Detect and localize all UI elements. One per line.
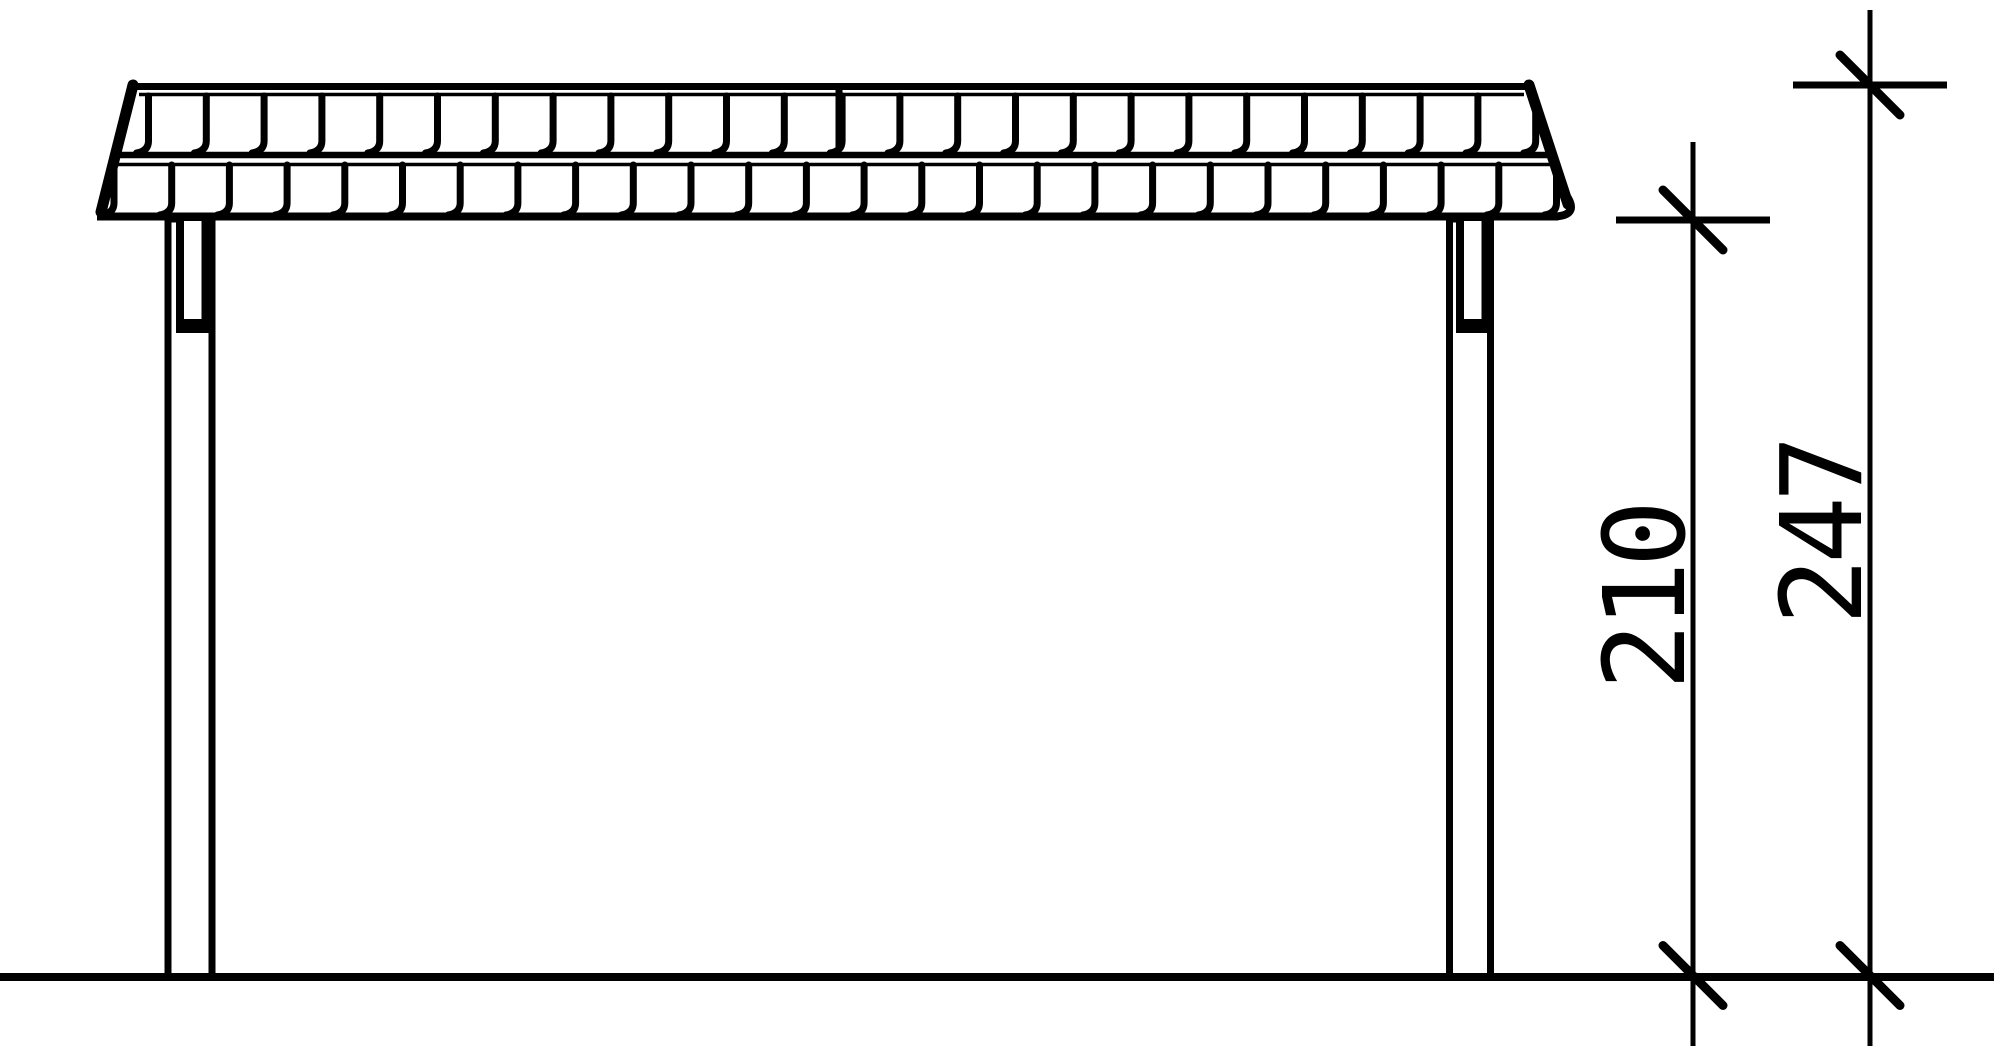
post-left: [168, 219, 212, 977]
shingle-divider: [1256, 165, 1268, 215]
dimension-label-210: 210: [1581, 506, 1711, 690]
shingle-divider: [1545, 165, 1557, 215]
shingle-divider: [1141, 165, 1153, 215]
dimension-height-to-eaves: 210: [1581, 142, 1770, 1046]
shingle-divider: [310, 96, 322, 153]
shingle-divider: [1466, 96, 1478, 153]
shingle-divider: [137, 96, 149, 153]
shingle-divider: [946, 96, 958, 153]
shingle-divider: [333, 165, 345, 215]
shingle-divider: [852, 165, 864, 215]
shingle-divider: [1293, 96, 1305, 153]
dimension-chains: 210247: [1581, 10, 1947, 1046]
shingle-divider: [1004, 96, 1016, 153]
shingle-divider: [1119, 96, 1131, 153]
shingle-divider: [1025, 165, 1037, 215]
shingle-divider: [1371, 165, 1383, 215]
shingle-divider: [1083, 165, 1095, 215]
shingle-divider: [1350, 96, 1362, 153]
shingle-divider: [368, 96, 380, 153]
shingle-divider: [621, 165, 633, 215]
shingle-divider: [1487, 165, 1499, 215]
carport-side-elevation-page: 210247: [0, 0, 1994, 1058]
carport-side-elevation-drawing: 210247: [0, 0, 1994, 1058]
post-right: [1450, 219, 1491, 977]
shingle-divider: [657, 96, 669, 153]
shingle-divider: [715, 96, 727, 153]
dimension-overall-height: 247: [1758, 10, 1947, 1046]
shingle-divider: [968, 165, 980, 215]
shingle-divider: [194, 96, 206, 153]
shingle-divider: [1408, 96, 1420, 153]
shingle-divider: [737, 165, 749, 215]
shingle-divider: [426, 96, 438, 153]
shingle-divider: [160, 165, 172, 215]
shingle-divider: [1177, 96, 1189, 153]
shingle-divider: [448, 165, 460, 215]
shingle-divider: [1429, 165, 1441, 215]
posts: [168, 219, 1491, 977]
shingle-divider: [1314, 165, 1326, 215]
roof: [97, 84, 1571, 217]
shingle-divider: [1061, 96, 1073, 153]
shingle-divider: [275, 165, 287, 215]
shingle-divider: [599, 96, 611, 153]
shingle-divider: [772, 96, 784, 153]
shingle-divider: [1235, 96, 1247, 153]
post-left-anchor-slot: [184, 221, 202, 319]
shingle-divider: [910, 165, 922, 215]
shingle-divider: [217, 165, 229, 215]
shingle-row-2: [102, 165, 1557, 215]
shingle-divider: [506, 165, 518, 215]
shingle-divider: [483, 96, 495, 153]
shingle-divider: [252, 96, 264, 153]
shingle-divider: [564, 165, 576, 215]
shingle-divider: [1198, 165, 1210, 215]
dimension-label-247: 247: [1758, 441, 1888, 625]
post-right-anchor-slot: [1464, 221, 1482, 319]
shingle-divider: [541, 96, 553, 153]
shingle-divider: [888, 96, 900, 153]
shingle-divider: [679, 165, 691, 215]
shingle-divider: [794, 165, 806, 215]
shingle-divider: [391, 165, 403, 215]
